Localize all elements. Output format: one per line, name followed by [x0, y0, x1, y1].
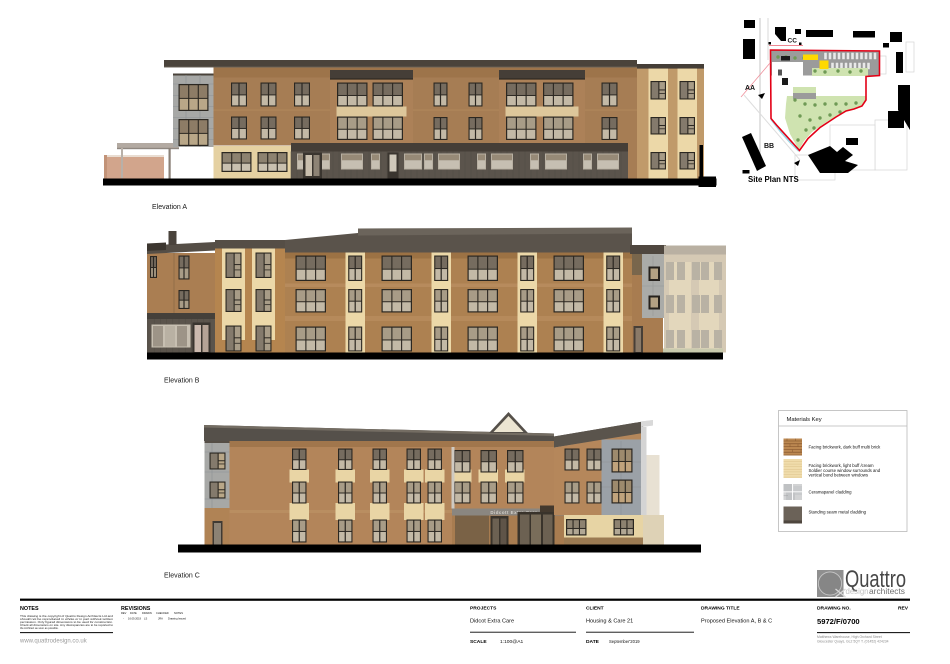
svg-text:vertical bond between windows: vertical bond between windows [809, 473, 868, 478]
svg-text:LS: LS [144, 617, 147, 621]
svg-text:Drawing Issued: Drawing Issued [168, 617, 186, 621]
svg-text:Gloucester Quays, GL2 5QY T: Gloucester Quays, GL2 5QY T. (01452) 424… [817, 640, 889, 644]
svg-text:16.09.2019: 16.09.2019 [128, 617, 142, 621]
svg-text:DATE: DATE [586, 639, 600, 645]
svg-text:Proposed Elevation A, B & C: Proposed Elevation A, B & C [701, 618, 772, 624]
svg-text:design: design [846, 586, 869, 596]
svg-text:5972/F/0700: 5972/F/0700 [817, 617, 860, 626]
svg-text:REV: REV [898, 606, 909, 612]
svg-text:www.quattrodesign.co.uk: www.quattrodesign.co.uk [19, 639, 88, 645]
svg-text:NOTES: NOTES [174, 611, 183, 615]
svg-text:DRAWN: DRAWN [142, 611, 152, 615]
svg-text:1:100@A1: 1:100@A1 [500, 639, 523, 645]
svg-text:AA: AA [745, 85, 755, 92]
svg-text:-: - [123, 618, 124, 621]
svg-text:architects: architects [869, 586, 905, 596]
svg-text:Standing seam metal cladding: Standing seam metal cladding [809, 510, 867, 515]
svg-text:Materials Key: Materials Key [787, 417, 822, 423]
svg-text:NOTES: NOTES [20, 606, 39, 612]
svg-text:DRAWING NO.: DRAWING NO. [817, 606, 851, 612]
svg-text:Didcot Extra Care: Didcot Extra Care [470, 618, 514, 624]
svg-text:CHECKED: CHECKED [156, 611, 169, 615]
svg-text:Elevation C: Elevation C [164, 573, 200, 580]
svg-text:DRAWING TITLE: DRAWING TITLE [701, 606, 740, 612]
svg-text:CC: CC [788, 38, 798, 45]
svg-text:Matthews Warehouse, High Orcha: Matthews Warehouse, High Orchard Street [817, 635, 882, 639]
svg-text:the Architect as soon as possi: the Architect as soon as possible. [20, 626, 59, 630]
svg-text:PROJECTS: PROJECTS [470, 606, 497, 612]
svg-text:DATE: DATE [130, 611, 137, 615]
svg-text:Site Plan NTS: Site Plan NTS [748, 175, 799, 184]
svg-text:Ceramapanel cladding: Ceramapanel cladding [809, 490, 853, 495]
svg-text:September'2019: September'2019 [609, 639, 640, 644]
svg-text:JRA: JRA [158, 617, 163, 621]
svg-text:CLIENT: CLIENT [586, 606, 604, 612]
svg-text:Elevation B: Elevation B [164, 378, 200, 385]
svg-text:SCALE: SCALE [470, 639, 487, 645]
svg-text:Facing brickwork, dark buff mu: Facing brickwork, dark buff multi brick [809, 445, 882, 450]
svg-text:REV: REV [121, 611, 127, 615]
svg-text:BB: BB [764, 143, 774, 150]
svg-text:Elevation A: Elevation A [152, 204, 187, 211]
svg-text:Housing & Care 21: Housing & Care 21 [586, 618, 633, 624]
